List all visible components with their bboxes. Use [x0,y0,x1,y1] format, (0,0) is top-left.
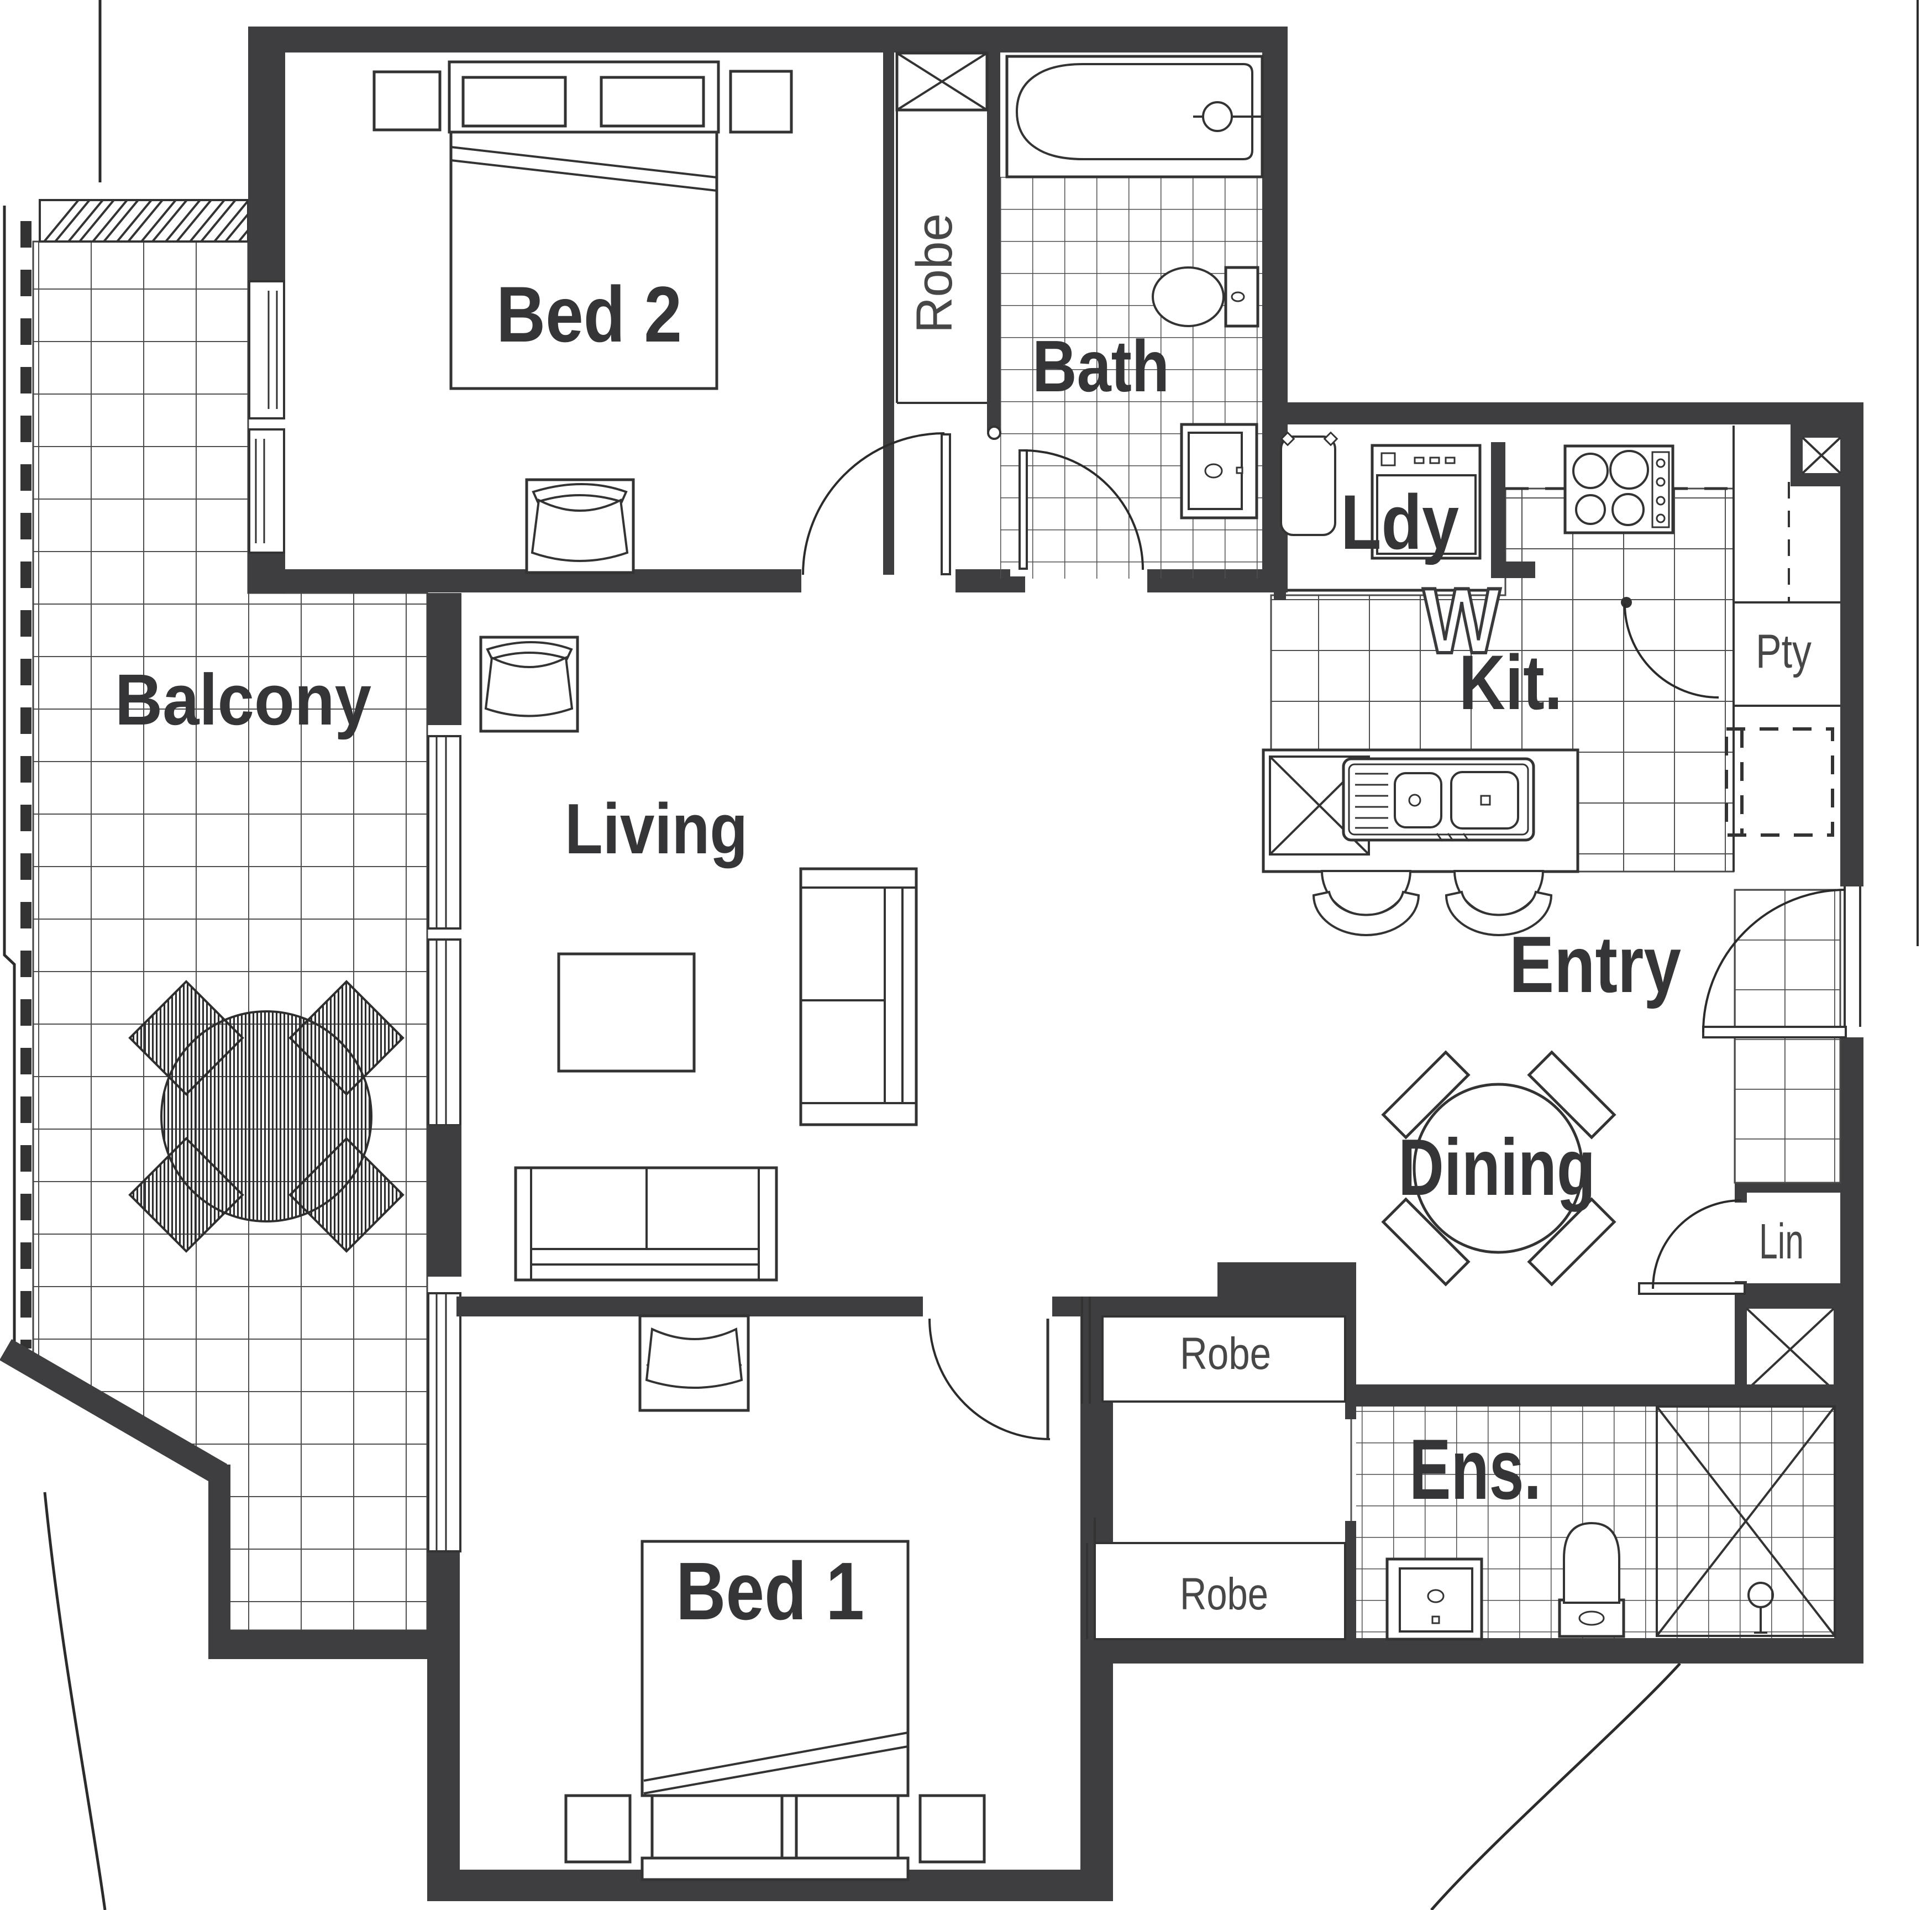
svg-text:Robe: Robe [1180,1569,1268,1619]
svg-text:Lin: Lin [1759,1214,1804,1269]
svg-text:Ldy: Ldy [1341,479,1459,565]
svg-text:Robe: Robe [1180,1329,1271,1379]
svg-text:Bed 1: Bed 1 [676,1546,864,1637]
svg-text:Pty: Pty [1756,625,1812,678]
svg-text:Entry: Entry [1509,920,1681,1009]
svg-text:Bath: Bath [1032,326,1169,407]
svg-text:Balcony: Balcony [115,659,371,740]
svg-text:Ens.: Ens. [1409,1421,1541,1517]
svg-text:W: W [1423,569,1500,673]
svg-text:Living: Living [565,789,748,869]
svg-text:Bed 2: Bed 2 [496,271,682,359]
svg-text:Robe: Robe [906,213,963,333]
svg-text:Dining: Dining [1398,1122,1595,1212]
